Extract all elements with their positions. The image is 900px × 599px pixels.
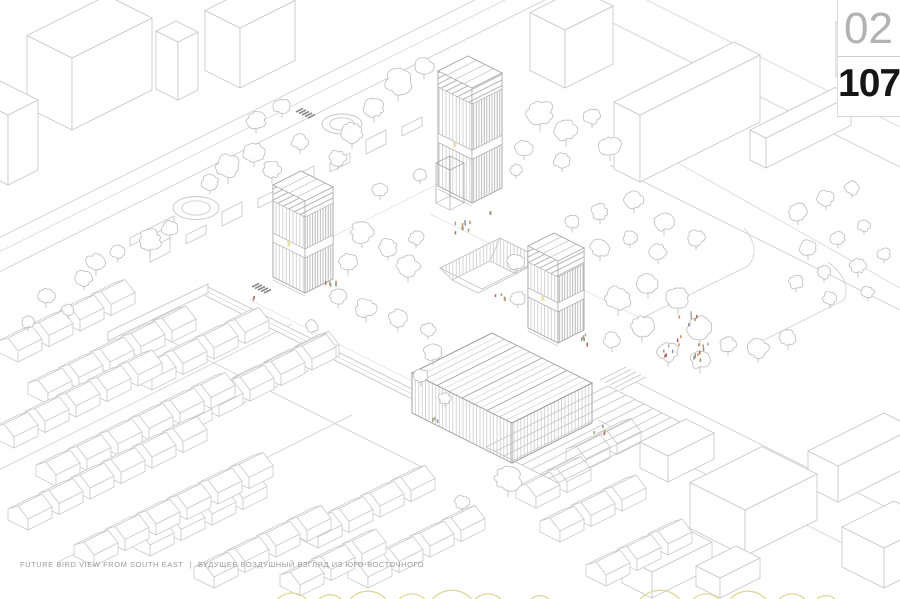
tower [528,233,584,346]
page-corner-index: 02 107 [837,0,900,117]
page-number: 107 [838,57,900,103]
tower [438,56,502,206]
drawing-caption: FUTURE BIRD VIEW FROM SOUTH EAST|БУДУЩЕЕ… [20,560,424,569]
presentation-sheet: 02 107 FUTURE BIRD VIEW FROM SOUTH EAST|… [0,0,900,599]
axonometric-drawing [0,0,900,599]
next-page-trees-overlay [272,590,840,599]
sunken-court [440,238,542,293]
tower [273,171,333,296]
chapter-number: 02 [838,0,900,51]
caption-en: FUTURE BIRD VIEW FROM SOUTH EAST [20,560,183,569]
housing-fabric [0,280,692,597]
caption-ru: БУДУЩЕЕ ВОЗДУШНЫЙ ВЗГЛЯД ИЗ ЮГО-ВОСТОЧНО… [198,560,424,569]
caption-separator: | [189,560,192,569]
